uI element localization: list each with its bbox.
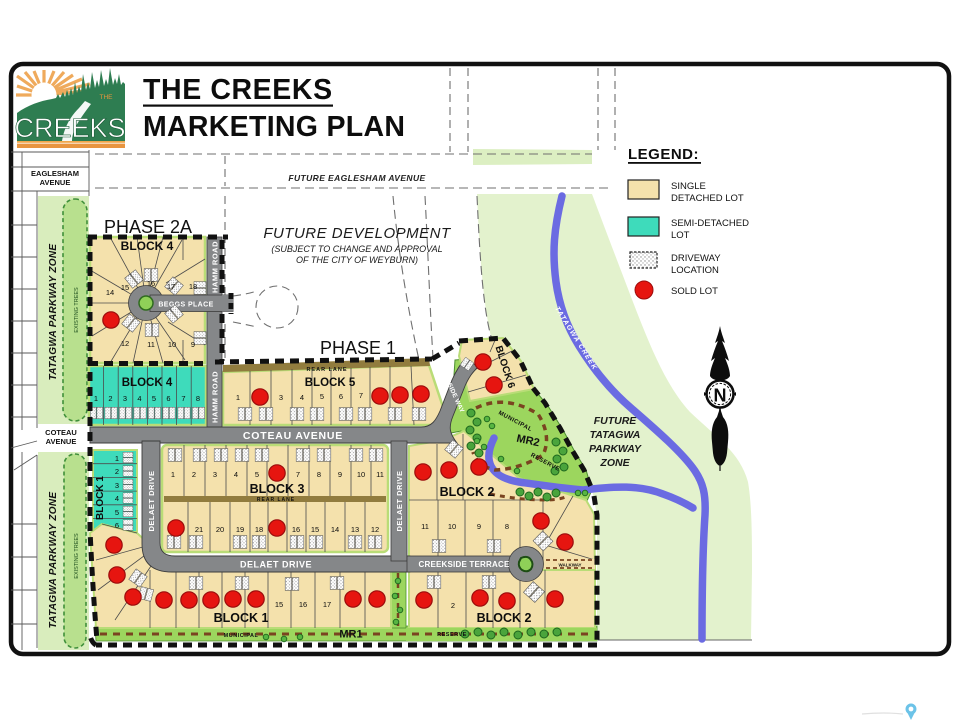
svg-text:4: 4 xyxy=(137,394,141,403)
svg-text:AVENUE: AVENUE xyxy=(40,178,71,187)
svg-text:15: 15 xyxy=(121,283,129,292)
svg-text:DETACHED LOT: DETACHED LOT xyxy=(671,193,744,204)
svg-text:5: 5 xyxy=(152,394,156,403)
svg-text:EXISTING TREES: EXISTING TREES xyxy=(74,533,80,579)
svg-text:2: 2 xyxy=(192,470,196,479)
svg-text:BLOCK 4: BLOCK 4 xyxy=(121,239,174,253)
svg-text:SEMI-DETACHED: SEMI-DETACHED xyxy=(671,218,749,229)
svg-text:12: 12 xyxy=(371,525,379,534)
svg-text:COTEAU AVENUE: COTEAU AVENUE xyxy=(243,430,343,442)
svg-text:11: 11 xyxy=(376,470,384,479)
svg-text:DELAET DRIVE: DELAET DRIVE xyxy=(395,470,404,531)
svg-text:18: 18 xyxy=(189,282,197,291)
svg-text:BLOCK 3: BLOCK 3 xyxy=(250,482,305,496)
svg-text:16: 16 xyxy=(299,600,307,609)
svg-text:HAMM ROAD: HAMM ROAD xyxy=(211,371,220,423)
svg-text:11: 11 xyxy=(421,522,429,531)
svg-text:14: 14 xyxy=(106,288,114,297)
svg-text:3: 3 xyxy=(123,394,127,403)
svg-text:CREEKS: CREEKS xyxy=(14,113,125,143)
svg-text:PARKWAY: PARKWAY xyxy=(589,443,642,455)
svg-text:TATAGWA: TATAGWA xyxy=(590,429,641,441)
svg-text:13: 13 xyxy=(351,525,359,534)
svg-text:DELAET DRIVE: DELAET DRIVE xyxy=(240,560,312,570)
svg-text:FUTURE EAGLESHAM AVENUE: FUTURE EAGLESHAM AVENUE xyxy=(288,173,425,183)
svg-text:4: 4 xyxy=(234,470,238,479)
svg-text:16: 16 xyxy=(292,525,300,534)
svg-text:BLOCK 1: BLOCK 1 xyxy=(214,611,269,625)
svg-text:BLOCK 1: BLOCK 1 xyxy=(95,476,106,520)
svg-text:COTEAU: COTEAU xyxy=(45,428,77,437)
svg-text:3: 3 xyxy=(115,481,119,490)
svg-text:1: 1 xyxy=(236,393,240,402)
svg-text:MARKETING PLAN: MARKETING PLAN xyxy=(143,111,405,143)
svg-text:1: 1 xyxy=(115,454,119,463)
svg-text:11: 11 xyxy=(147,340,155,349)
svg-text:N: N xyxy=(714,386,727,406)
svg-text:4: 4 xyxy=(300,393,304,402)
svg-text:THE: THE xyxy=(100,94,114,101)
svg-text:WALKWAY: WALKWAY xyxy=(558,563,581,568)
svg-text:7: 7 xyxy=(296,470,300,479)
svg-text:7: 7 xyxy=(181,394,185,403)
svg-text:SOLD LOT: SOLD LOT xyxy=(671,286,718,297)
svg-text:6: 6 xyxy=(166,394,170,403)
svg-text:15: 15 xyxy=(311,525,319,534)
svg-text:DELAET DRIVE: DELAET DRIVE xyxy=(147,470,156,531)
svg-text:9: 9 xyxy=(191,340,195,349)
svg-text:10: 10 xyxy=(168,340,176,349)
svg-text:TATAGWA PARKWAY ZONE: TATAGWA PARKWAY ZONE xyxy=(48,244,59,381)
svg-text:OF THE CITY OF WEYBURN): OF THE CITY OF WEYBURN) xyxy=(296,255,418,265)
svg-text:5: 5 xyxy=(115,508,119,517)
svg-text:3: 3 xyxy=(213,470,217,479)
svg-text:15: 15 xyxy=(275,600,283,609)
svg-text:AVENUE: AVENUE xyxy=(46,437,77,446)
svg-text:EXISTING TREES: EXISTING TREES xyxy=(74,287,80,333)
svg-text:5: 5 xyxy=(255,470,259,479)
svg-text:14: 14 xyxy=(331,525,339,534)
svg-text:BEGGS PLACE: BEGGS PLACE xyxy=(158,302,213,309)
svg-text:17: 17 xyxy=(323,600,331,609)
svg-text:BLOCK 2: BLOCK 2 xyxy=(477,611,532,625)
svg-text:BLOCK 5: BLOCK 5 xyxy=(305,377,356,389)
svg-text:PHASE 1: PHASE 1 xyxy=(320,338,396,358)
svg-text:21: 21 xyxy=(195,525,203,534)
svg-text:4: 4 xyxy=(115,494,119,503)
svg-text:LOCATION: LOCATION xyxy=(671,265,719,276)
svg-text:19: 19 xyxy=(236,525,244,534)
svg-text:(SUBJECT TO CHANGE AND APPROVA: (SUBJECT TO CHANGE AND APPROVAL xyxy=(271,244,442,254)
svg-text:FUTURE DEVELOPMENT: FUTURE DEVELOPMENT xyxy=(263,225,452,242)
svg-text:ZONE: ZONE xyxy=(599,457,630,469)
svg-text:BLOCK 4: BLOCK 4 xyxy=(122,377,173,389)
svg-text:8: 8 xyxy=(505,522,509,531)
svg-text:2: 2 xyxy=(108,394,112,403)
svg-text:TATAGWA PARKWAY ZONE: TATAGWA PARKWAY ZONE xyxy=(48,492,59,629)
svg-text:8: 8 xyxy=(196,394,200,403)
svg-text:7: 7 xyxy=(359,391,363,400)
svg-text:12: 12 xyxy=(121,339,129,348)
svg-text:EAGLESHAM: EAGLESHAM xyxy=(31,169,79,178)
svg-text:9: 9 xyxy=(338,470,342,479)
svg-text:THE CREEKS: THE CREEKS xyxy=(143,74,333,106)
svg-text:DRIVEWAY: DRIVEWAY xyxy=(671,253,721,264)
svg-text:6: 6 xyxy=(339,392,343,401)
svg-text:9: 9 xyxy=(477,522,481,531)
svg-text:REAR LANE: REAR LANE xyxy=(306,367,347,373)
svg-text:REAR LANE: REAR LANE xyxy=(257,497,295,503)
svg-text:16: 16 xyxy=(147,279,155,288)
svg-text:PHASE 2A: PHASE 2A xyxy=(104,217,192,237)
svg-text:MUNICIPAL: MUNICIPAL xyxy=(224,633,259,639)
svg-text:MR1: MR1 xyxy=(339,629,362,641)
svg-text:3: 3 xyxy=(279,393,283,402)
svg-text:8: 8 xyxy=(317,470,321,479)
svg-text:5: 5 xyxy=(320,392,324,401)
svg-text:1: 1 xyxy=(171,470,175,479)
svg-text:RESERVE: RESERVE xyxy=(437,632,467,638)
svg-text:LEGEND:: LEGEND: xyxy=(628,146,699,163)
svg-text:1: 1 xyxy=(94,394,98,403)
svg-text:2: 2 xyxy=(451,601,455,610)
svg-text:FUTURE: FUTURE xyxy=(594,415,638,427)
svg-text:LOT: LOT xyxy=(671,230,690,241)
svg-text:2: 2 xyxy=(115,467,119,476)
svg-text:10: 10 xyxy=(448,522,456,531)
svg-text:HAMM ROAD: HAMM ROAD xyxy=(211,241,220,293)
svg-text:10: 10 xyxy=(357,470,365,479)
svg-text:20: 20 xyxy=(216,525,224,534)
svg-text:6: 6 xyxy=(115,521,119,530)
svg-text:18: 18 xyxy=(255,525,263,534)
svg-text:CREEKSIDE TERRACE: CREEKSIDE TERRACE xyxy=(419,560,510,569)
svg-text:17: 17 xyxy=(167,282,175,291)
svg-text:BLOCK 2: BLOCK 2 xyxy=(440,485,495,499)
svg-text:SINGLE: SINGLE xyxy=(671,181,706,192)
